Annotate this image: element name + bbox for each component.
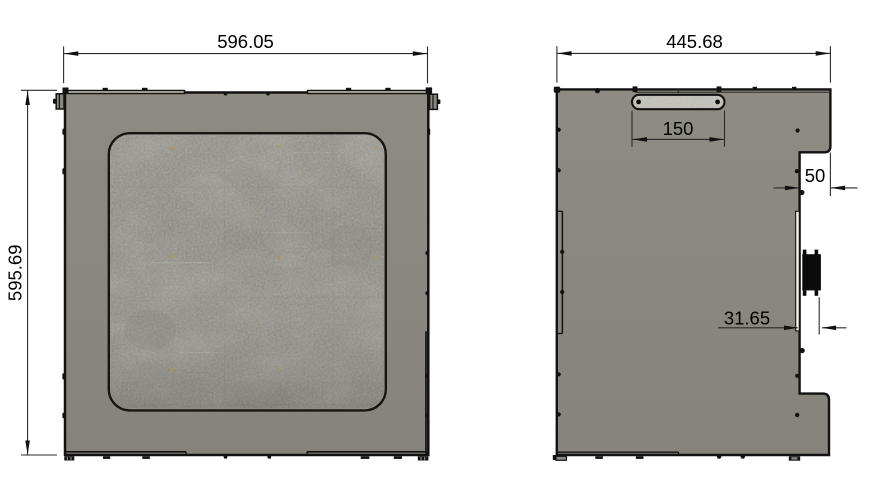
- svg-text:150: 150: [663, 118, 694, 139]
- svg-text:595.69: 595.69: [5, 245, 26, 302]
- svg-text:50: 50: [805, 165, 826, 186]
- svg-text:596.05: 596.05: [217, 31, 274, 52]
- svg-text:31.65: 31.65: [724, 307, 770, 328]
- svg-text:445.68: 445.68: [666, 31, 723, 52]
